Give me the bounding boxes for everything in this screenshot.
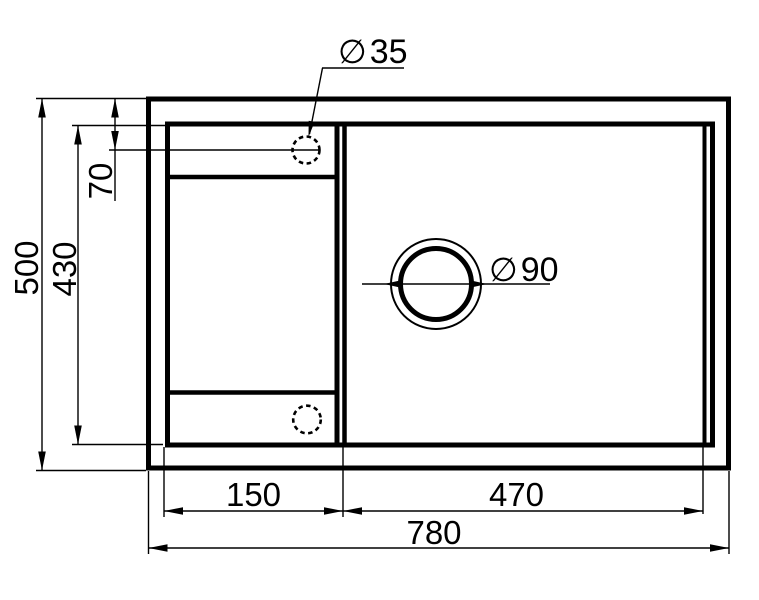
dimension-value: 780 bbox=[406, 514, 461, 551]
arrowhead-up bbox=[111, 99, 119, 118]
dimension-left-section: 150 bbox=[164, 447, 343, 517]
arrowhead-up bbox=[74, 126, 82, 145]
diameter-symbol: ∅ bbox=[338, 33, 367, 70]
diameter-label: ∅35 bbox=[338, 33, 408, 71]
arrowhead-right bbox=[710, 544, 729, 552]
dimension-value: 500 bbox=[8, 240, 45, 295]
arrowhead-right bbox=[324, 507, 343, 515]
dimension-value: 470 bbox=[489, 476, 544, 513]
faucet-hole-bottom-circle bbox=[293, 406, 321, 434]
diameter-value: 90 bbox=[521, 251, 559, 289]
arrowhead-right bbox=[471, 281, 487, 288]
arrowhead-down bbox=[111, 131, 119, 150]
diameter-label: ∅90 bbox=[489, 251, 559, 289]
dimension-right-section: 470 bbox=[343, 448, 703, 515]
arrowhead-down bbox=[74, 426, 82, 445]
arrowhead-left bbox=[343, 507, 362, 515]
arrowhead-left bbox=[149, 544, 168, 552]
drawing-canvas: 500 430 70 150 470 7 bbox=[0, 0, 759, 600]
arrowhead-down bbox=[38, 452, 46, 471]
arrowhead-up bbox=[38, 99, 46, 118]
diameter-symbol: ∅ bbox=[489, 251, 518, 288]
arrowhead-right bbox=[684, 507, 703, 515]
sink-technical-drawing: 500 430 70 150 470 7 bbox=[0, 0, 759, 600]
arrowhead-left bbox=[164, 507, 183, 515]
label-faucet-diameter: ∅35 bbox=[309, 33, 408, 137]
dimension-value: 430 bbox=[46, 241, 83, 296]
diameter-value: 35 bbox=[370, 33, 408, 71]
dimension-value: 70 bbox=[82, 163, 119, 200]
faucet-holes bbox=[109, 137, 321, 434]
dimension-value: 150 bbox=[226, 476, 281, 513]
leader-arrowhead bbox=[309, 121, 315, 137]
